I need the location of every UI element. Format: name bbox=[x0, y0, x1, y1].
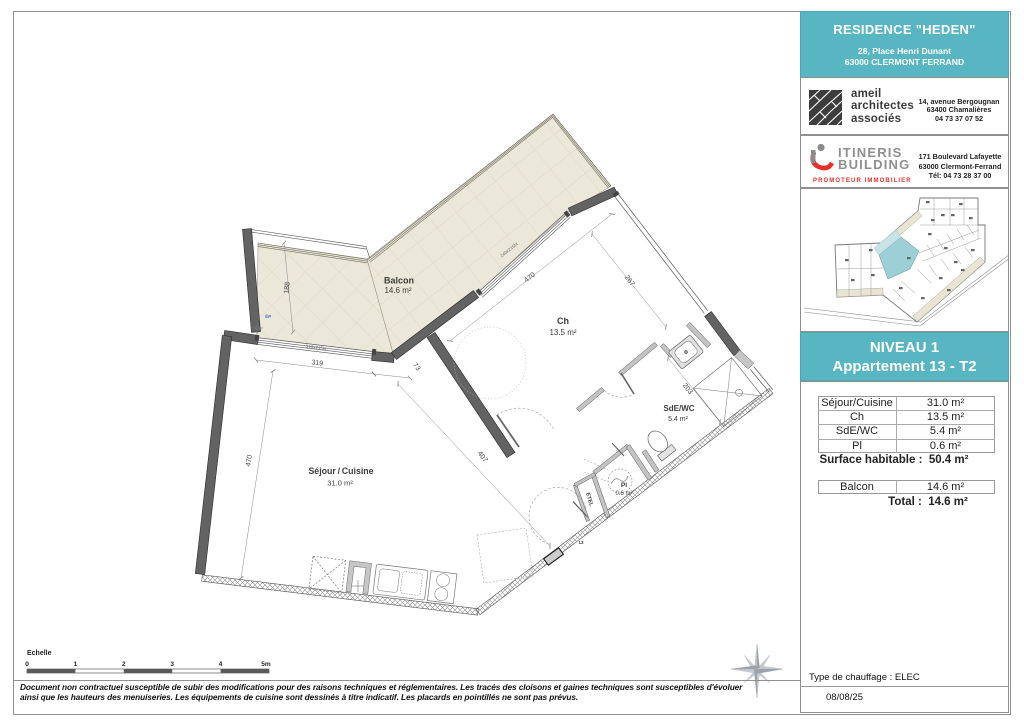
svg-text:Balcon: Balcon bbox=[384, 276, 414, 286]
svg-text:Ch: Ch bbox=[557, 316, 569, 326]
svg-text:Séjour / Cuisine: Séjour / Cuisine bbox=[308, 466, 373, 476]
svg-text:267: 267 bbox=[623, 274, 636, 288]
svg-text:2: 2 bbox=[122, 661, 126, 668]
svg-text:188: 188 bbox=[283, 282, 291, 294]
svg-text:13.5 m²: 13.5 m² bbox=[549, 328, 576, 337]
svg-text:3: 3 bbox=[170, 661, 174, 668]
svg-text:4: 4 bbox=[219, 661, 223, 668]
svg-text:31.0 m²: 31.0 m² bbox=[327, 479, 353, 488]
svg-text:SdE/WC: SdE/WC bbox=[663, 404, 694, 413]
svg-text:13: 13 bbox=[578, 540, 584, 545]
svg-text:5m: 5m bbox=[261, 661, 271, 668]
svg-text:5.4 m²: 5.4 m² bbox=[668, 416, 689, 423]
svg-text:ETEL: ETEL bbox=[584, 492, 594, 508]
svg-text:203: 203 bbox=[681, 382, 694, 396]
svg-text:0: 0 bbox=[25, 661, 29, 668]
svg-text:470: 470 bbox=[523, 271, 537, 284]
svg-text:EP: EP bbox=[265, 314, 272, 320]
svg-text:Pl: Pl bbox=[621, 482, 627, 489]
svg-text:1: 1 bbox=[74, 661, 78, 668]
svg-text:73: 73 bbox=[411, 362, 421, 373]
svg-text:0.6 m²: 0.6 m² bbox=[615, 491, 632, 497]
svg-text:470: 470 bbox=[245, 454, 254, 467]
svg-text:407: 407 bbox=[476, 450, 489, 464]
svg-text:14.6 m²: 14.6 m² bbox=[384, 286, 411, 295]
svg-text:Echelle: Echelle bbox=[27, 650, 52, 657]
svg-text:319: 319 bbox=[311, 359, 324, 367]
